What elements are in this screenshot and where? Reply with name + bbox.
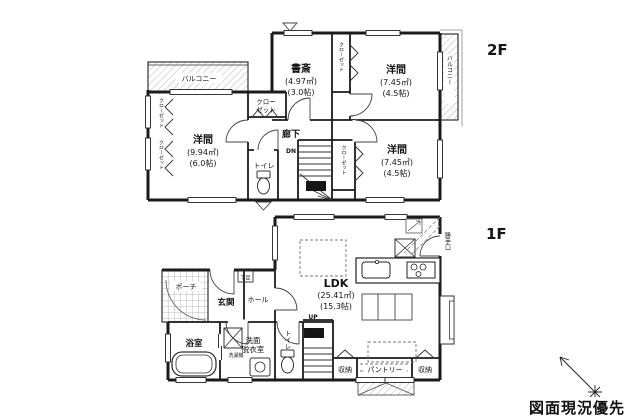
room-area: (7.45㎡) bbox=[380, 78, 412, 87]
toilet-label: トイレ bbox=[283, 330, 291, 350]
room-name: 書斎 bbox=[291, 62, 311, 75]
kitchen-counter bbox=[356, 258, 440, 283]
window bbox=[176, 378, 206, 383]
toilet-fixture-1f bbox=[281, 350, 294, 373]
floor-label-1f: 1F bbox=[486, 225, 507, 243]
window bbox=[438, 52, 443, 90]
kitchen-island bbox=[300, 240, 346, 276]
window bbox=[385, 215, 407, 220]
shoe-cabinet-label: 下足 bbox=[240, 276, 250, 282]
room-tatami: (4.5帖) bbox=[384, 168, 411, 178]
entrance-label: 玄関 bbox=[217, 297, 234, 308]
vent-triangle-1f bbox=[256, 202, 271, 210]
washroom-label: 脱衣室 bbox=[242, 344, 265, 354]
window bbox=[366, 31, 400, 36]
stairs-up-label: UP bbox=[308, 314, 318, 321]
stairs-1f bbox=[303, 348, 333, 372]
window bbox=[228, 378, 252, 383]
floorplan-page: バルコニー バルコニー クローゼット クローゼット クローゼット クローゼット … bbox=[0, 0, 628, 420]
window bbox=[438, 140, 443, 178]
storage-label: 収納 bbox=[338, 365, 352, 374]
stairs-2f bbox=[298, 146, 332, 200]
window bbox=[366, 198, 404, 203]
storage-label: 収納 bbox=[418, 365, 432, 374]
faucet bbox=[375, 260, 378, 263]
window bbox=[146, 96, 151, 128]
window bbox=[273, 226, 278, 260]
interior-walls-1f bbox=[168, 270, 440, 380]
toilet-fixture-2f bbox=[257, 171, 270, 194]
closet-label: クローゼット bbox=[338, 42, 344, 72]
room-tatami: (3.0帖) bbox=[288, 87, 315, 97]
drawing-priority-note: 図面現況優先 bbox=[528, 397, 626, 418]
porch-area bbox=[162, 270, 208, 322]
washer-label: 洗濯機 bbox=[228, 352, 243, 359]
room-tatami: (4.5帖) bbox=[383, 88, 410, 98]
room-area: (7.45㎡) bbox=[381, 158, 413, 167]
dining-table bbox=[362, 294, 412, 320]
bathtub bbox=[172, 352, 216, 376]
room-name: 洋間 bbox=[193, 133, 213, 146]
window bbox=[284, 31, 312, 36]
kitchen-sink bbox=[362, 262, 390, 278]
kitchen-door-label: 勝手口 bbox=[444, 231, 451, 251]
hall-label: ホール bbox=[248, 296, 269, 304]
pantry-label: パントリー bbox=[367, 366, 402, 374]
closet-label: クローゼット bbox=[158, 98, 164, 128]
room-name: 洋間 bbox=[386, 63, 406, 76]
closet-label: クロー bbox=[256, 98, 276, 106]
room-name: 洋間 bbox=[387, 143, 407, 156]
porch-label: ポーチ bbox=[176, 283, 197, 291]
floor-label-2f: 2F bbox=[487, 41, 508, 59]
window bbox=[170, 90, 232, 95]
room-area: (25.41㎡) bbox=[317, 291, 354, 300]
room-area: (9.94㎡) bbox=[187, 148, 219, 157]
terrace-step bbox=[358, 382, 414, 395]
window bbox=[188, 198, 236, 203]
sofa bbox=[368, 342, 416, 362]
washbasin bbox=[250, 358, 270, 376]
closet-label: ゼット bbox=[256, 105, 276, 114]
window bbox=[146, 138, 151, 170]
washroom-label: 洗面 bbox=[246, 335, 261, 345]
hallway-label: 廊下 bbox=[282, 128, 300, 140]
storage-tag-label: 物入 bbox=[310, 183, 322, 191]
balcony-top-label: バルコニー bbox=[182, 75, 217, 83]
window bbox=[166, 334, 171, 362]
washer-box bbox=[224, 328, 242, 348]
room-tatami: (6.0帖) bbox=[190, 158, 217, 168]
room-area: (4.97㎡) bbox=[285, 77, 317, 86]
room-tatami: (15.3帖) bbox=[320, 301, 352, 311]
stairs-dn-label: DN bbox=[286, 148, 296, 155]
closet-label: クローゼット bbox=[341, 145, 347, 175]
north-arrow bbox=[560, 357, 602, 399]
bath-label: 浴室 bbox=[185, 338, 203, 349]
closet-label: クローゼット bbox=[158, 140, 164, 170]
room-name: LDK bbox=[324, 277, 349, 290]
bay-window bbox=[440, 296, 454, 344]
understairs-label: 物入 bbox=[308, 330, 320, 338]
vent-triangle-2f bbox=[283, 23, 297, 31]
floor-2f-plan: バルコニー バルコニー クローゼット クローゼット クローゼット クローゼット … bbox=[146, 23, 508, 203]
toilet-label: トイレ bbox=[254, 162, 275, 170]
floor-1f-plan: LDK (25.41㎡) (15.3帖) ポーチ 玄関 ホール 浴室 洗面 脱衣… bbox=[162, 202, 507, 395]
floorplan-drawing: バルコニー バルコニー クローゼット クローゼット クローゼット クローゼット … bbox=[0, 0, 628, 420]
window bbox=[294, 215, 334, 220]
balcony-right-label: バルコニー bbox=[446, 55, 453, 85]
